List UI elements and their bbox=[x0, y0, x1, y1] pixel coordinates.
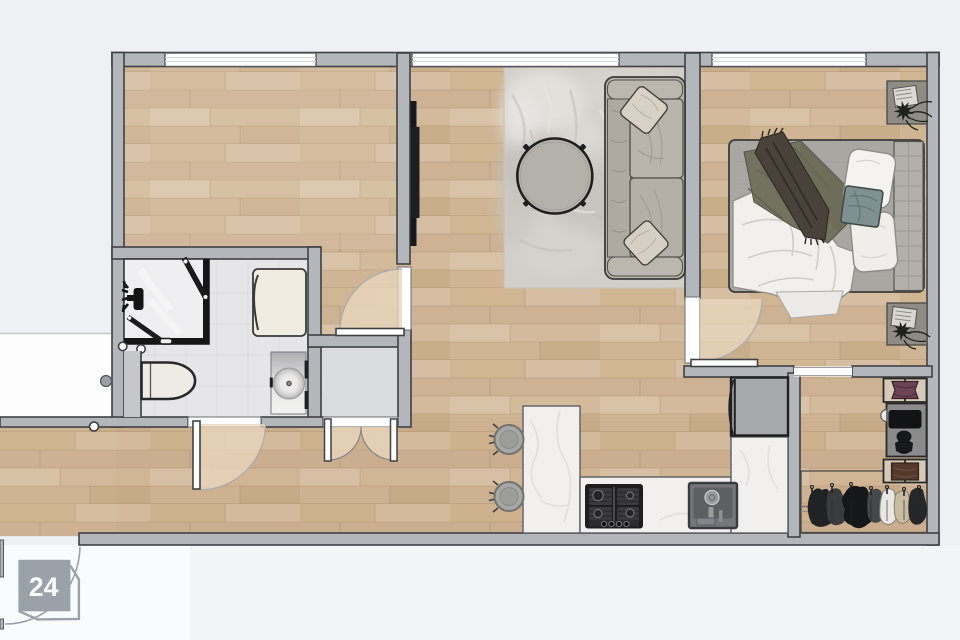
svg-text:24: 24 bbox=[29, 572, 59, 602]
